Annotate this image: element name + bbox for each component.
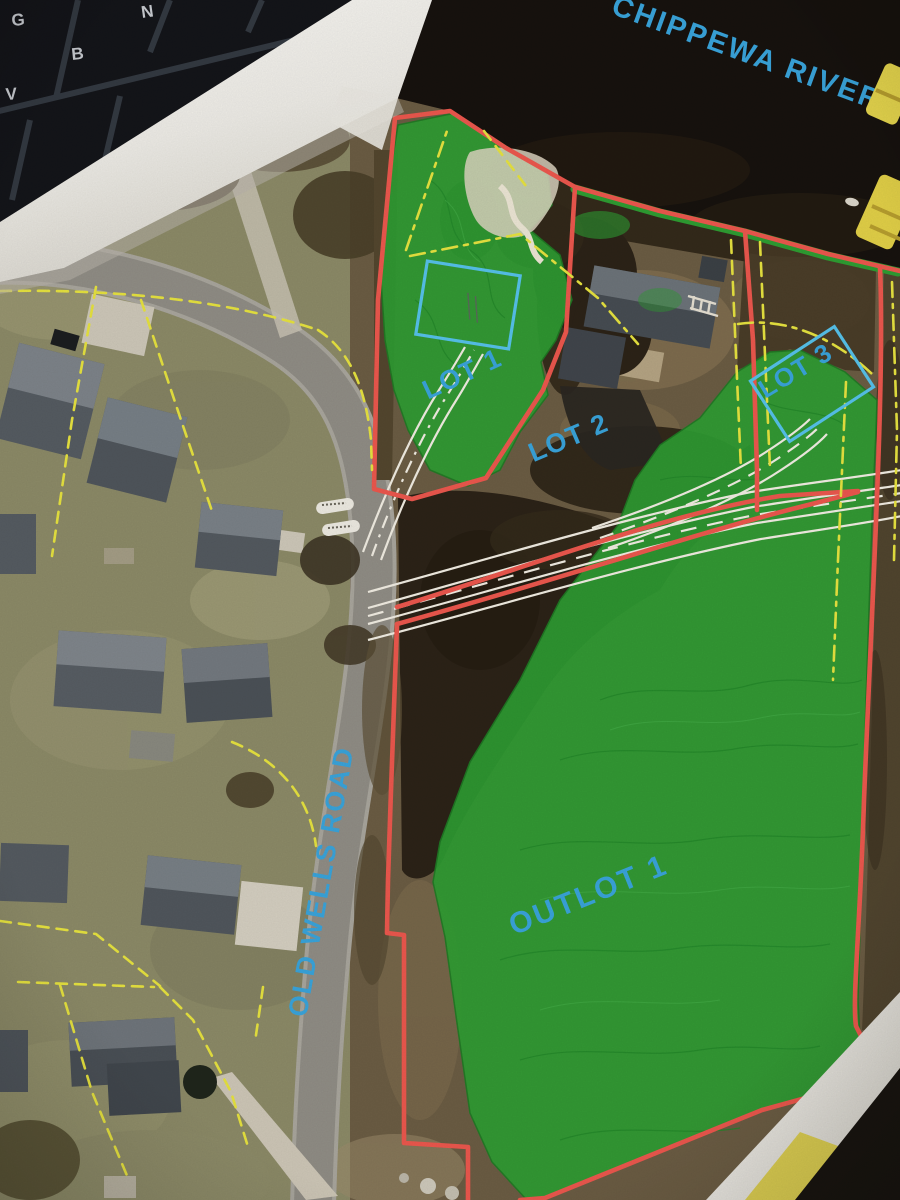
- photo-grain: [0, 0, 900, 1200]
- map-photo: CHIPPEWA RIVER LOT 1 LOT 2 LOT 3 OUTLOT …: [0, 0, 900, 1200]
